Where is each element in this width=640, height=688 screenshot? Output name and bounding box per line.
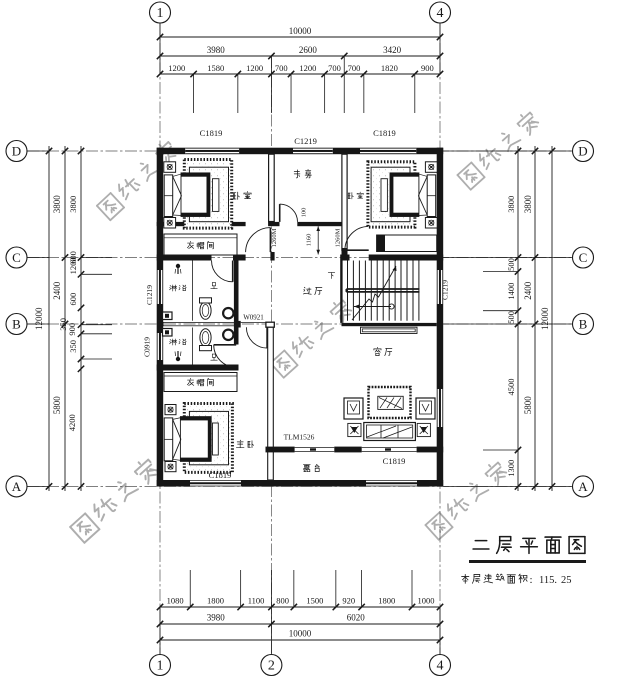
svg-text:5800: 5800	[52, 396, 62, 415]
svg-text:1800: 1800	[378, 596, 395, 606]
svg-text:350: 350	[68, 340, 78, 353]
svg-text:700: 700	[275, 63, 288, 73]
svg-text:700: 700	[348, 63, 361, 73]
svg-text::: :	[529, 574, 532, 586]
svg-text:800: 800	[276, 596, 289, 606]
svg-text:700: 700	[328, 63, 341, 73]
svg-text:1820: 1820	[381, 63, 398, 73]
svg-text:C1219: C1219	[294, 136, 317, 146]
svg-text:500: 500	[506, 311, 516, 324]
svg-text:1800: 1800	[207, 596, 224, 606]
svg-text:D: D	[12, 144, 21, 159]
svg-text:B: B	[579, 317, 588, 332]
svg-text:B: B	[12, 317, 21, 332]
svg-text:12000: 12000	[540, 307, 550, 330]
svg-text:900: 900	[421, 63, 434, 73]
svg-text:1160: 1160	[306, 234, 313, 247]
svg-text:4: 4	[437, 659, 444, 674]
svg-text:1200: 1200	[68, 257, 78, 274]
svg-text:10000: 10000	[289, 629, 312, 639]
svg-text:1200: 1200	[299, 63, 316, 73]
svg-text:5800: 5800	[523, 396, 533, 415]
svg-text:1300: 1300	[506, 460, 516, 477]
svg-text:C0919: C0919	[143, 337, 152, 357]
svg-text:1260M: 1260M	[335, 228, 342, 247]
svg-text:D: D	[578, 144, 587, 159]
svg-text:4500: 4500	[506, 379, 516, 396]
svg-text:4: 4	[437, 6, 444, 21]
svg-text:1100: 1100	[248, 596, 265, 606]
svg-text:C1819: C1819	[383, 456, 406, 466]
svg-text:TLM1526: TLM1526	[284, 433, 315, 442]
svg-text:C1819: C1819	[373, 128, 396, 138]
svg-text:2400: 2400	[523, 281, 533, 300]
svg-text:6020: 6020	[347, 613, 366, 623]
svg-text:3420: 3420	[383, 45, 402, 55]
svg-text:1080: 1080	[167, 596, 184, 606]
svg-text:A: A	[578, 479, 588, 494]
svg-text:1400: 1400	[506, 283, 516, 300]
svg-text:4200: 4200	[67, 414, 77, 431]
svg-text:100: 100	[301, 208, 308, 218]
svg-text:3800: 3800	[523, 195, 533, 214]
svg-text:1: 1	[157, 6, 164, 21]
svg-text:3800: 3800	[52, 195, 62, 214]
svg-text:2600: 2600	[299, 45, 318, 55]
svg-text:1200: 1200	[246, 63, 263, 73]
svg-text:C1219: C1219	[441, 280, 450, 300]
svg-text:2: 2	[268, 659, 275, 674]
svg-text:1: 1	[157, 659, 164, 674]
svg-text:3800: 3800	[68, 196, 78, 213]
svg-text:12000: 12000	[34, 307, 44, 330]
svg-text:C: C	[12, 250, 21, 265]
svg-text:C1219: C1219	[145, 285, 154, 305]
svg-text:900: 900	[67, 323, 77, 336]
svg-text:C: C	[579, 250, 588, 265]
svg-text:A: A	[12, 479, 22, 494]
svg-text:1000: 1000	[418, 596, 435, 606]
svg-text:1200: 1200	[168, 63, 185, 73]
svg-text:500: 500	[506, 258, 516, 271]
svg-text:115.: 115.	[539, 575, 557, 586]
svg-text:920: 920	[342, 596, 355, 606]
svg-text:1260M: 1260M	[271, 228, 278, 247]
svg-text:W0921: W0921	[243, 314, 264, 322]
svg-text:2400: 2400	[52, 281, 62, 300]
svg-text:1500: 1500	[306, 596, 323, 606]
svg-text:3980: 3980	[207, 613, 226, 623]
svg-text:10000: 10000	[289, 26, 312, 36]
svg-text:600: 600	[68, 293, 78, 306]
svg-text:1580: 1580	[207, 63, 224, 73]
svg-text:C1819: C1819	[209, 470, 232, 480]
svg-text:25: 25	[561, 575, 572, 586]
svg-text:3980: 3980	[207, 45, 226, 55]
svg-text:3800: 3800	[506, 196, 516, 213]
svg-text:C1819: C1819	[200, 128, 223, 138]
